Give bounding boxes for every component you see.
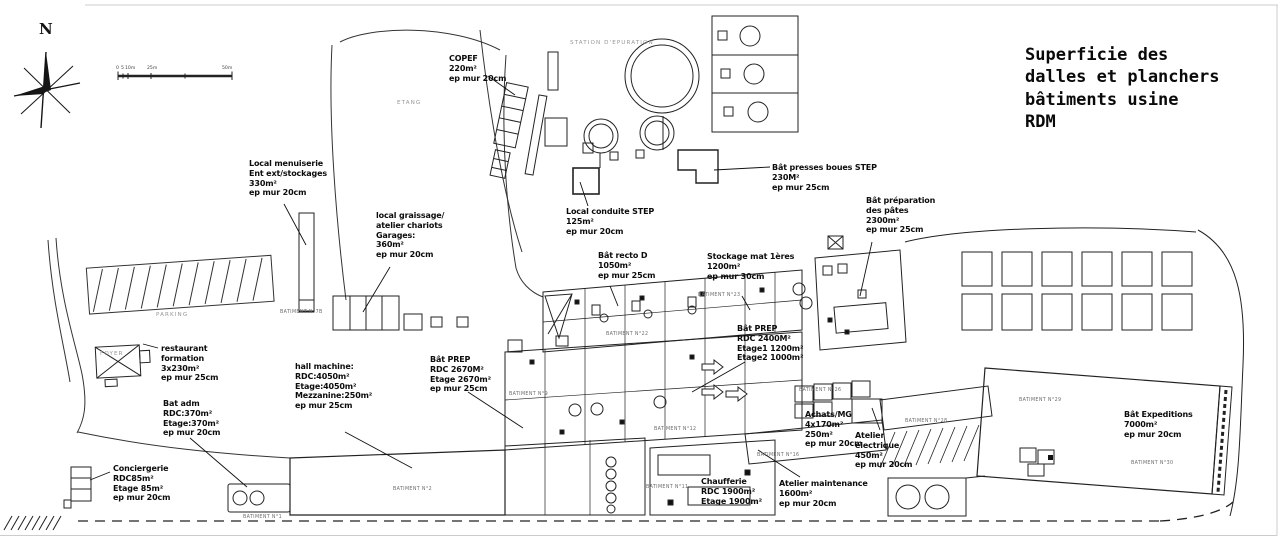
administration-building xyxy=(228,484,290,512)
parking-area xyxy=(86,255,274,314)
copef-building xyxy=(487,83,547,180)
graissage-building xyxy=(333,296,468,330)
achats-mg-cells xyxy=(795,381,882,423)
site-plan-page: N Superficie des dalles et planchers bât… xyxy=(0,0,1280,537)
page-frame xyxy=(0,5,1278,536)
scale-bar xyxy=(118,72,232,81)
roads-and-pond xyxy=(48,30,543,458)
batiment-11-block xyxy=(505,438,645,515)
preparation-pates-building xyxy=(793,236,906,350)
restaurant-building xyxy=(95,344,151,387)
fuel-tanks xyxy=(888,476,985,516)
north-arrow-icon xyxy=(14,52,80,128)
expeditions-building xyxy=(977,368,1232,495)
site-plan-drawing xyxy=(0,0,1280,537)
site-boundary xyxy=(4,230,1244,530)
batiment-16-building xyxy=(745,420,886,464)
storage-yard xyxy=(905,228,1196,330)
stockage-band xyxy=(543,270,802,352)
menuiserie-building xyxy=(299,213,314,312)
leader-lines xyxy=(90,76,880,487)
chaufferie-building xyxy=(650,440,775,515)
conciergerie-building xyxy=(64,467,91,508)
batiment-28-building xyxy=(880,386,992,468)
